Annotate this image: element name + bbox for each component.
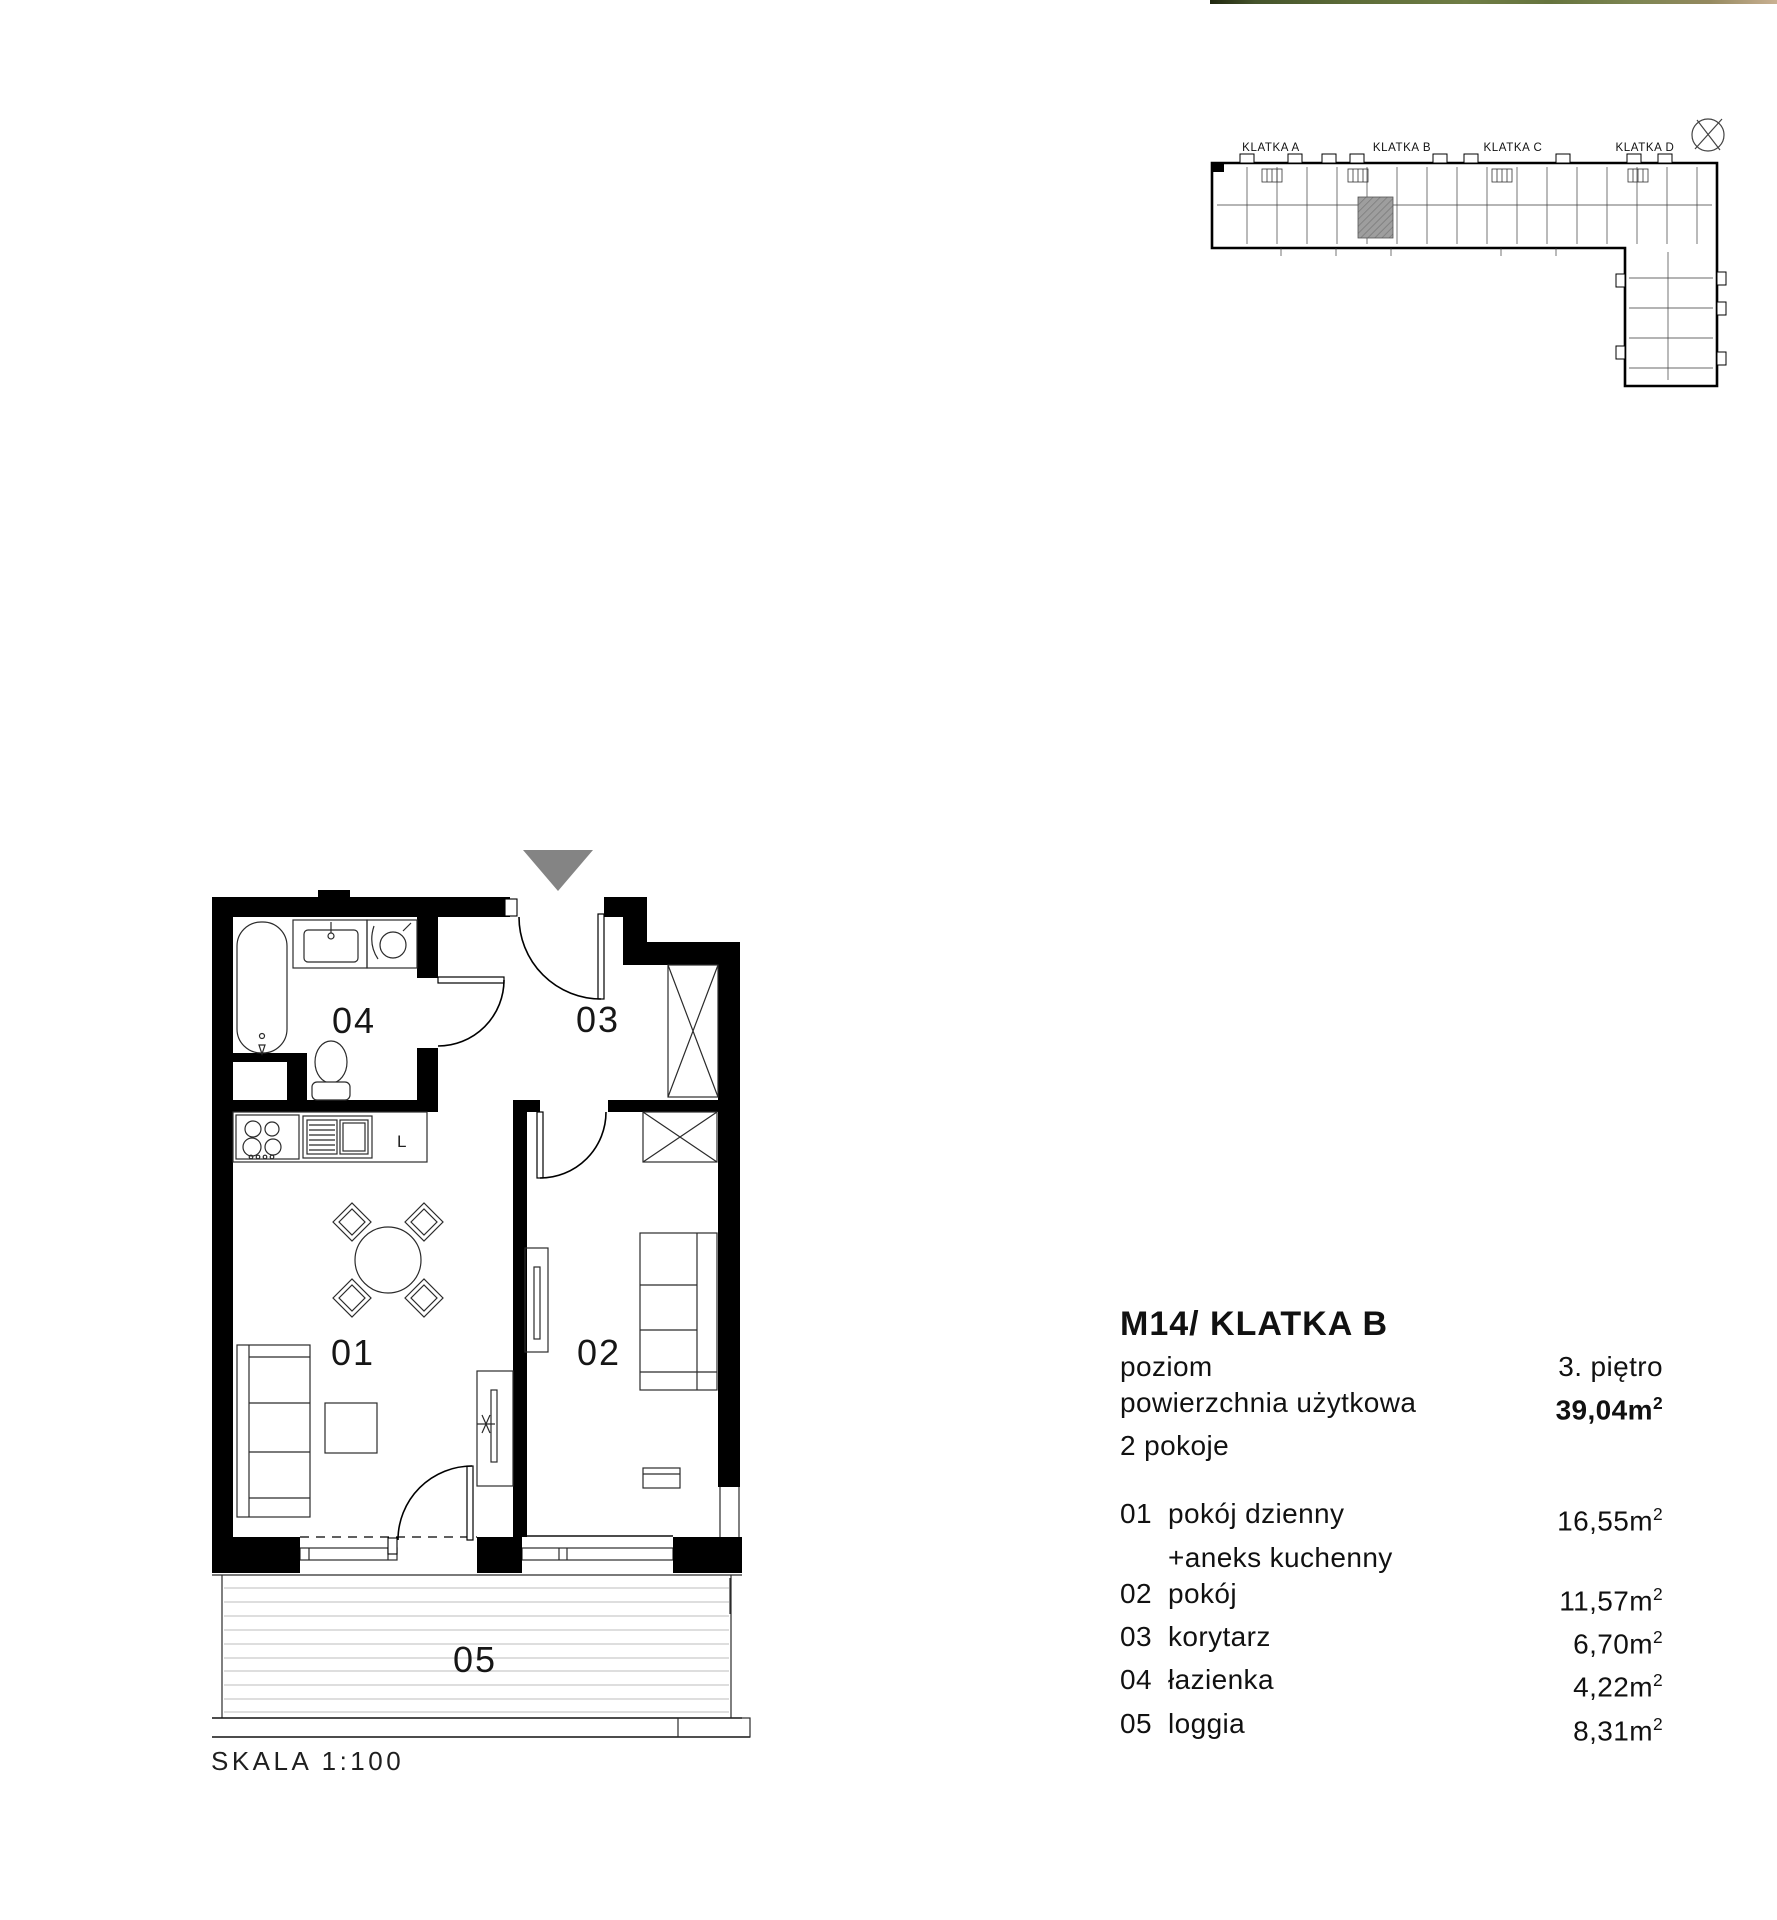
entrance-door-arc [519,917,601,999]
room-list-item: 05loggia 8,31m2 [1120,1706,1663,1749]
room02-door-leaf [537,1112,543,1178]
room-list-item: 01pokój dzienny 16,55m2 [1120,1496,1663,1539]
wardrobe [643,1112,717,1162]
window-room01 [300,1548,397,1560]
room-list-item: 02pokój 11,57m2 [1120,1576,1663,1619]
loggia-door-arc [398,1466,472,1540]
area-row: powierzchnia użytkowa 39,04m2 [1120,1385,1663,1428]
fridge-label: L [397,1132,406,1151]
entrance-door-leaf [598,914,604,999]
building-outline [1212,163,1717,386]
tv-unit [525,1248,548,1352]
klatka-b-label: KLATKA B [1373,142,1431,154]
balcony-marks [1212,154,1726,365]
nightstand [643,1468,680,1488]
washbasin [304,930,358,962]
sofa [237,1345,310,1517]
bathroom-door-arc [438,980,504,1046]
room-list-item: +aneks kuchenny [1120,1540,1663,1576]
klatka-a-label: KLATKA A [1242,142,1300,154]
klatka-d-label: KLATKA D [1616,142,1675,154]
bathroom-door-leaf [438,977,504,983]
room-list-item: 04łazienka 4,22m2 [1120,1662,1663,1705]
klatka-c-label: KLATKA C [1484,142,1543,154]
area-label: powierzchnia użytkowa [1120,1385,1416,1428]
tv-unit [477,1371,513,1486]
room03-label: 03 [576,999,620,1040]
coffee-table [325,1403,377,1453]
highlighted-unit [1358,197,1393,238]
area-value: 39,04m2 [1556,1385,1663,1428]
unit-title: M14/ KLATKA B [1120,1305,1663,1349]
rooms-count-row: 2 pokoje [1120,1428,1663,1464]
building-overview-plan: KLATKA A KLATKA B KLATKA C KLATKA D [1200,95,1777,395]
room01-label: 01 [331,1332,375,1373]
page: KLATKA A KLATKA B KLATKA C KLATKA D [0,0,1777,1920]
compass-icon [1692,119,1724,151]
room04-label: 04 [332,1000,376,1041]
entrance-arrow [523,850,593,891]
room02-label: 02 [577,1332,621,1373]
dining-table [333,1203,443,1317]
poziom-value: 3. piętro [1558,1349,1663,1385]
room05-label: 05 [453,1639,497,1680]
side-glazing [720,1487,739,1537]
kitchen-sink [303,1116,372,1158]
room-list: 01pokój dzienny 16,55m2 +aneks kuchenny … [1120,1496,1663,1749]
scale-label: SKALA 1:100 [211,1746,404,1776]
corridor-wardrobe [668,965,718,1097]
rooms-count: 2 pokoje [1120,1428,1229,1464]
stairwell-marks [1262,169,1648,182]
unit-meta: poziom 3. piętro powierzchnia użytkowa 3… [1120,1349,1663,1464]
room02-door-arc [540,1112,606,1178]
window-room02 [522,1548,673,1560]
bathroom-fixtures [237,920,417,1100]
room-list-item: 03korytarz 6,70m2 [1120,1619,1663,1662]
poziom-row: poziom 3. piętro [1120,1349,1663,1385]
top-photo-strip [1210,0,1777,4]
loggia-door-leaf [467,1466,473,1540]
washing-machine [367,920,417,968]
stove [236,1115,299,1159]
room02-furniture [525,1112,717,1488]
info-panel: M14/ KLATKA B poziom 3. piętro powierzch… [1120,1305,1663,1749]
poziom-label: poziom [1120,1349,1213,1385]
toilet [312,1041,350,1100]
sofa [640,1233,717,1390]
apartment-floor-plan: L [160,830,800,1800]
kitchen: L [233,1112,427,1162]
